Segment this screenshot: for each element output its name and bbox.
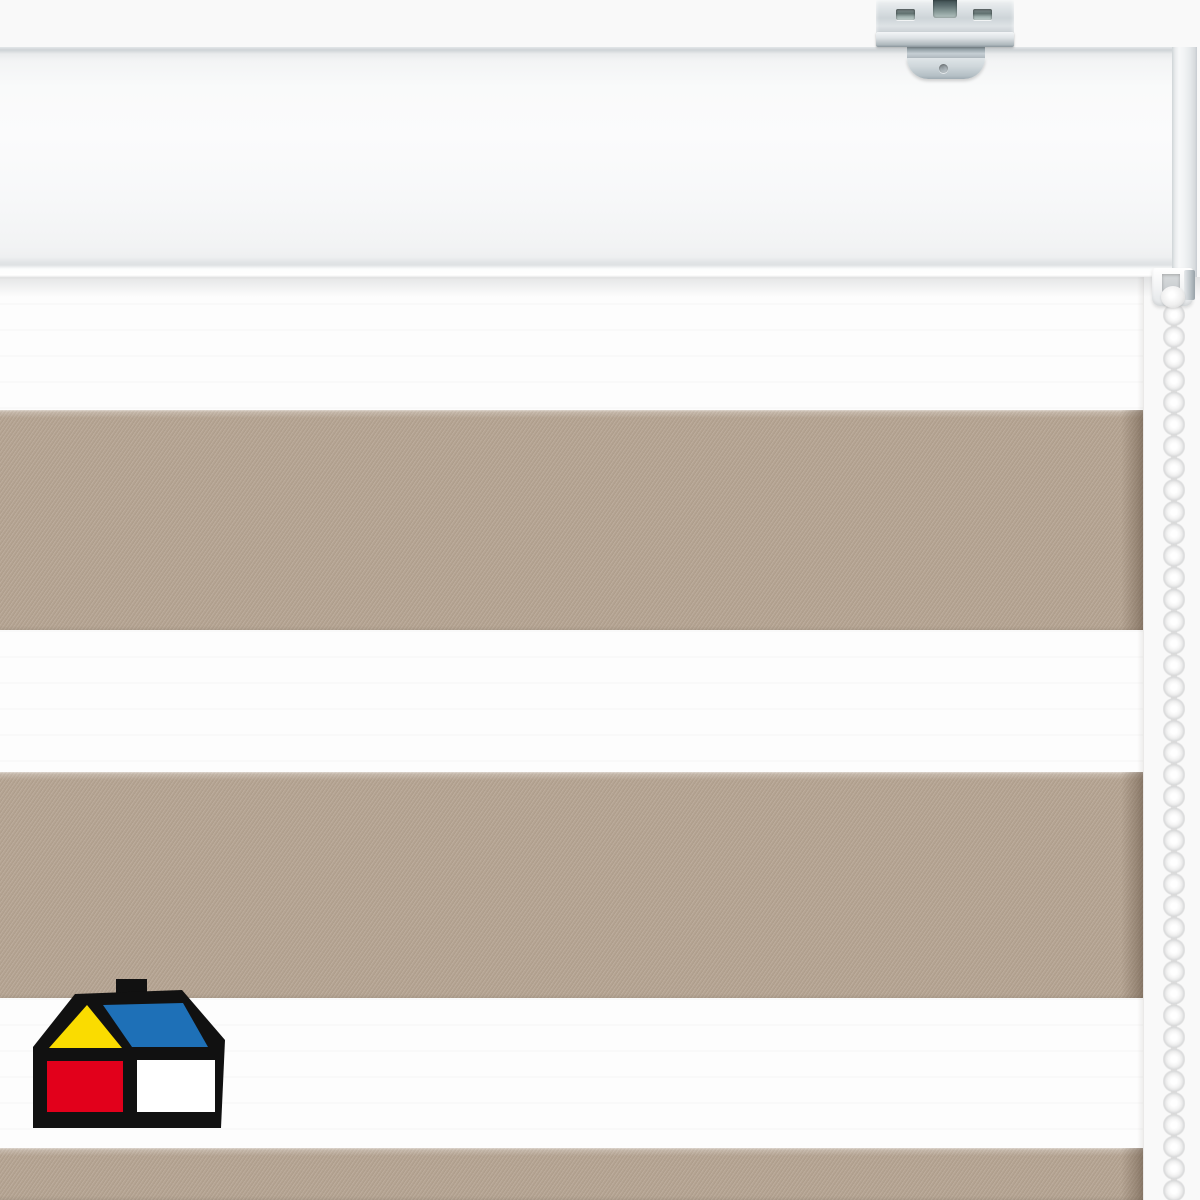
- bracket-center-tab: [933, 0, 957, 18]
- fabric-stripe-beige: [0, 410, 1143, 630]
- bracket-slot-left: [896, 9, 915, 20]
- fabric-stripe-white: [0, 630, 1143, 772]
- fabric-stripe-beige: [0, 772, 1143, 998]
- chain-top-bead: [1161, 286, 1185, 308]
- headrail-endcap: [1172, 47, 1197, 277]
- bracket-tongue: [907, 58, 985, 79]
- logo-white-wall: [137, 1060, 215, 1112]
- bracket-top-plate: [876, 0, 1014, 34]
- bead-control-chain: [1163, 304, 1185, 1200]
- mounting-bracket: [876, 0, 1014, 80]
- blind-headrail: [0, 47, 1172, 277]
- bracket-screw-hole: [939, 64, 948, 73]
- fabric-stripe-beige: [0, 1148, 1143, 1200]
- brand-house-logo: [31, 977, 227, 1129]
- headrail-shadow: [0, 277, 1200, 297]
- logo-red-wall: [47, 1061, 123, 1112]
- bracket-slot-right: [973, 9, 992, 20]
- product-photo-roller-blind: [0, 0, 1200, 1200]
- bracket-front-lip: [876, 32, 1014, 47]
- chain-clutch-metal-bracket: [1184, 270, 1195, 300]
